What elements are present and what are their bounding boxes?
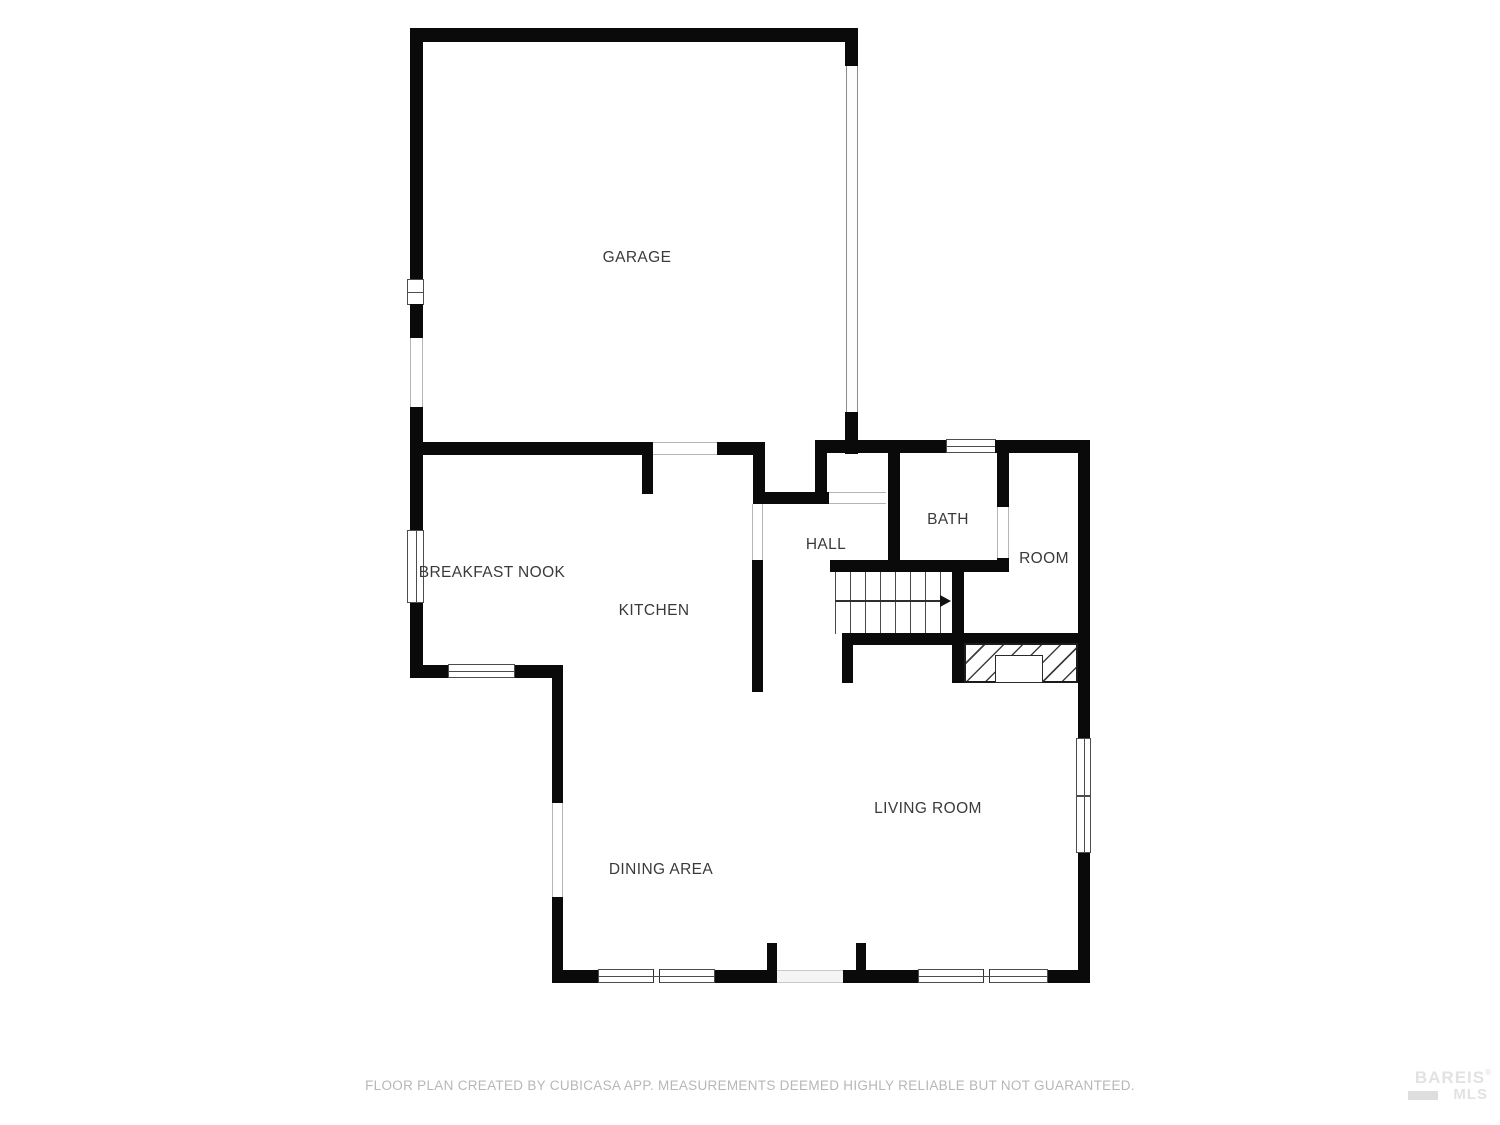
- opening-dining-west: [552, 803, 563, 897]
- window-living-room-bottom: [918, 969, 1048, 983]
- wall-dining-west-upper: [552, 665, 563, 803]
- room-label-garage: GARAGE: [603, 249, 672, 267]
- wall-kitchen-hall-divider: [752, 560, 763, 692]
- footer-disclaimer: FLOOR PLAN CREATED BY CUBICASA APP. MEAS…: [0, 1078, 1500, 1093]
- wall-garage-left-mid: [410, 304, 423, 338]
- room-label-living-room: LIVING ROOM: [874, 800, 982, 818]
- window-living-room-right-lower: [1076, 796, 1091, 853]
- wall-nook-bottom-1: [410, 665, 448, 678]
- floor-plan: GARAGE BREAKFAST NOOK KITCHEN HALL BATH …: [0, 0, 1500, 1125]
- window-mullion: [653, 969, 660, 983]
- patio-door-opening: [777, 970, 843, 983]
- fireplace-hearth: [995, 655, 1043, 683]
- door-opening-garage-side: [410, 338, 423, 407]
- door-opening-closet: [829, 492, 886, 504]
- window-garage-left: [407, 279, 424, 305]
- wall-garage-left-lower: [410, 407, 423, 530]
- wall-kitchen-door-return: [642, 442, 653, 494]
- wall-hall-bath-divider: [888, 440, 900, 562]
- wall-understair-left: [842, 645, 853, 683]
- wall-garage-top: [412, 28, 858, 42]
- window-dining-bottom: [598, 969, 715, 983]
- wall-patio-stub-left: [767, 943, 777, 970]
- watermark-line2: MLS: [1406, 1087, 1492, 1103]
- window-nook-bottom: [448, 664, 515, 678]
- door-opening-garage-kitchen: [652, 442, 717, 455]
- wall-garage-right-stub-top: [845, 28, 858, 66]
- room-label-breakfast-nook: BREAKFAST NOOK: [419, 564, 566, 582]
- wall-stairs-right: [952, 570, 964, 683]
- wall-room-top: [995, 440, 1090, 453]
- window-mullion: [983, 969, 990, 983]
- door-opening-kitchen-hall: [752, 504, 763, 560]
- wall-bottom-2: [715, 970, 777, 983]
- window-bath: [946, 439, 996, 453]
- wall-bath-bottom: [830, 560, 1007, 572]
- wall-kitchen-top: [412, 442, 652, 455]
- garage-door: [846, 66, 858, 412]
- stairs: [835, 572, 954, 634]
- wall-hall-top: [815, 440, 948, 453]
- window-living-room-right-upper: [1076, 738, 1091, 796]
- wall-bottom-3: [843, 970, 918, 983]
- wall-kitchen-top-right: [717, 442, 755, 455]
- room-label-room: ROOM: [1019, 550, 1069, 568]
- wall-garage-left-upper: [410, 28, 423, 279]
- watermark-bar: [1408, 1091, 1438, 1100]
- room-label-kitchen: KITCHEN: [619, 602, 690, 620]
- watermark-line1: BAREIS®: [1406, 1069, 1492, 1086]
- wall-dining-west-lower: [552, 897, 563, 983]
- stairs-walkline: [835, 600, 941, 602]
- wall-right-upper: [1078, 440, 1090, 738]
- wall-patio-stub-right: [856, 943, 866, 970]
- room-label-hall: HALL: [806, 536, 846, 554]
- wall-bottom-4: [1048, 970, 1090, 983]
- bareis-mls-watermark: BAREIS® MLS: [1406, 1069, 1492, 1103]
- wall-bath-right-upper: [997, 440, 1009, 507]
- registered-mark-icon: ®: [1485, 1068, 1492, 1077]
- room-label-bath: BATH: [927, 511, 969, 529]
- wall-right-lower: [1078, 853, 1090, 982]
- door-opening-bath: [997, 507, 1009, 558]
- stairs-direction-arrow: [940, 595, 951, 607]
- room-label-dining-area: DINING AREA: [609, 861, 713, 879]
